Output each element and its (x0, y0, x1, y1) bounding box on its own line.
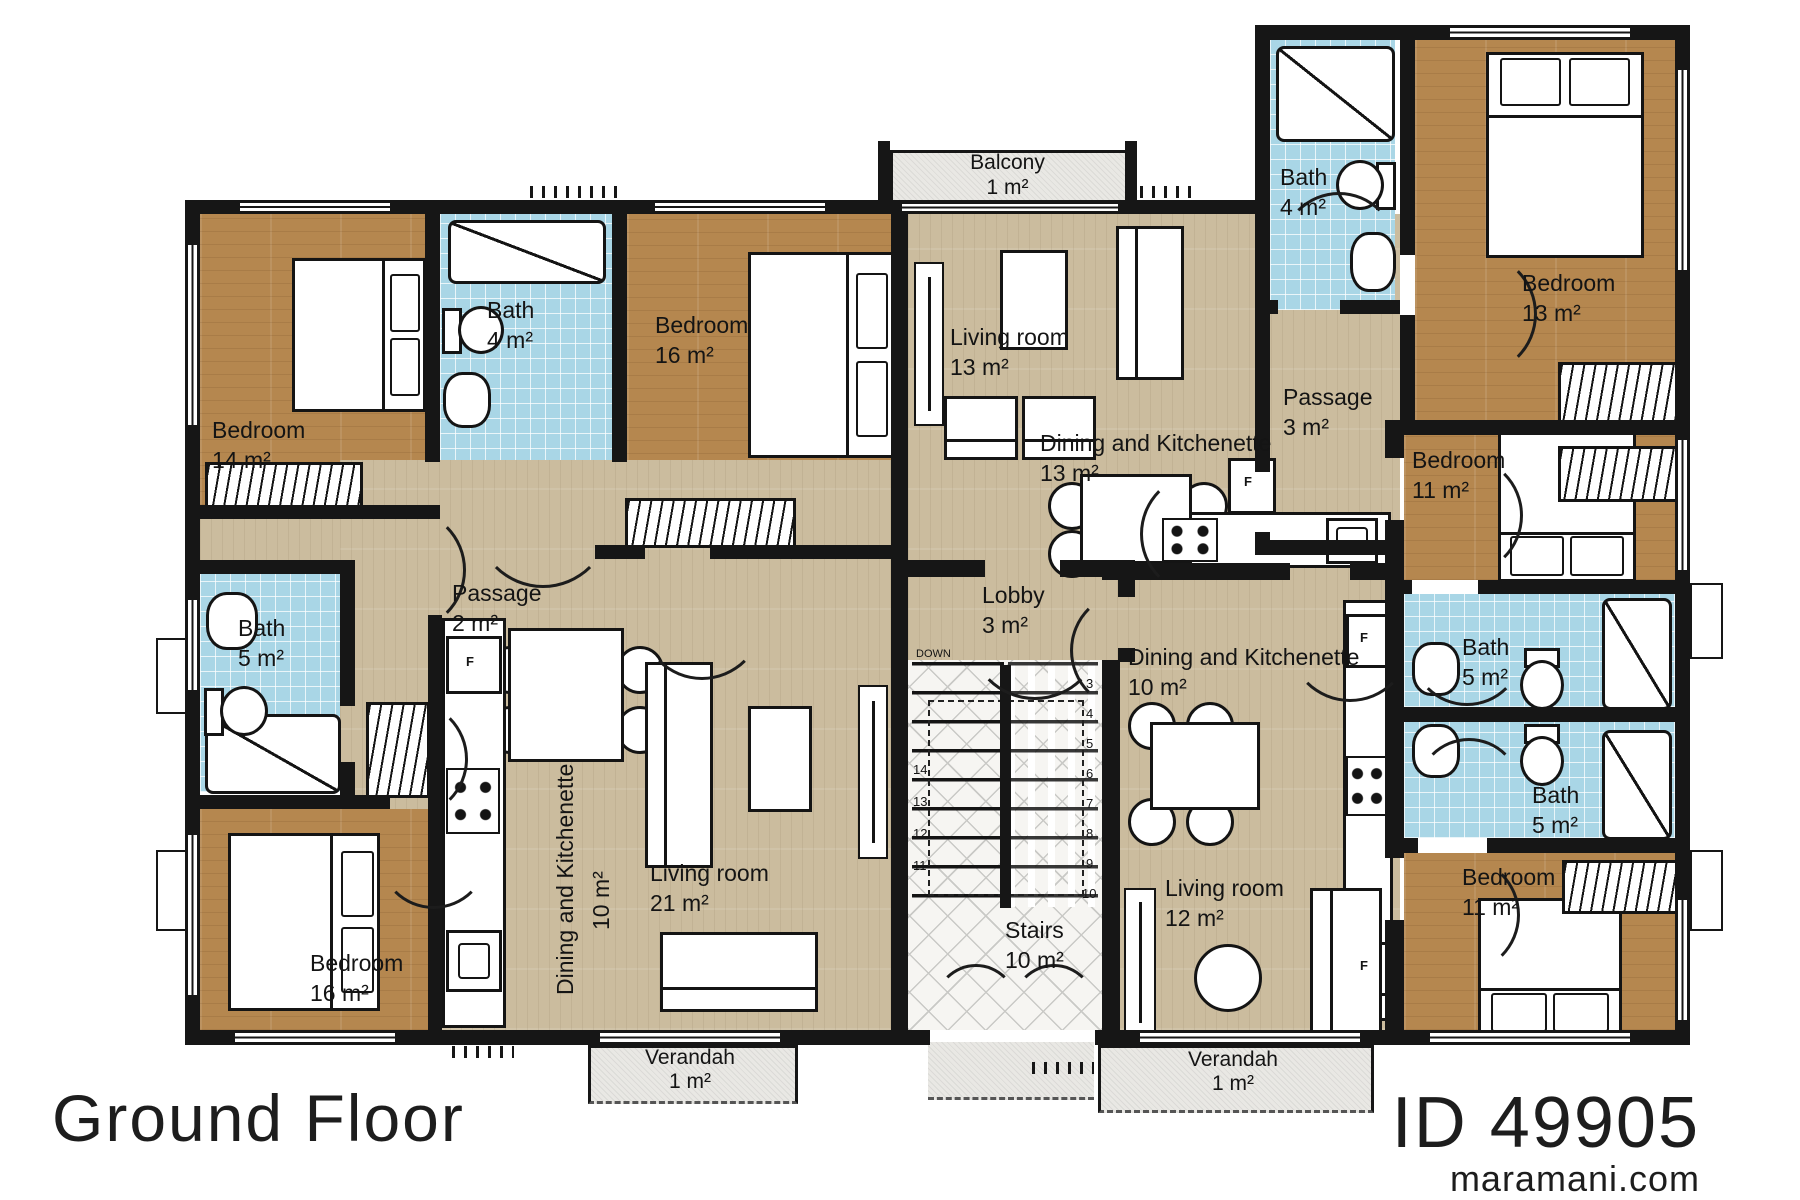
wall (425, 214, 440, 462)
room-label-bath-4-right: Bath4 m² (1280, 162, 1327, 223)
tv-cabinet (858, 685, 888, 859)
room-label-bath-4-left: Bath4 m² (487, 295, 534, 356)
wall-vent (530, 186, 622, 198)
window (902, 202, 1118, 213)
fridge-label: F (1360, 958, 1368, 973)
window (1676, 70, 1689, 270)
room-label-bath-5-low: Bath5 m² (1532, 780, 1579, 841)
window (600, 1031, 780, 1044)
window (235, 1031, 395, 1044)
wall (612, 214, 627, 462)
dining-table (1150, 722, 1260, 810)
window (1676, 900, 1689, 1020)
fridge (446, 636, 502, 694)
window (186, 245, 199, 425)
window (1676, 440, 1689, 570)
wardrobe (1558, 446, 1678, 502)
wardrobe (1558, 362, 1678, 424)
sofa (660, 932, 818, 1012)
wardrobe (625, 498, 796, 548)
shower-tray (1276, 46, 1395, 142)
room-label-bedroom-11-lower: Bedroom11 m² (1462, 862, 1555, 923)
wall (1400, 40, 1415, 255)
wall (185, 795, 390, 809)
shower-tray (448, 220, 606, 284)
room-label-dining-13: Dining and Kitchenette13 m² (1040, 428, 1271, 489)
shower-tray (1602, 730, 1672, 840)
room-label-bedroom-13: Bedroom13 m² (1522, 268, 1615, 329)
step-number: 7 (1086, 796, 1093, 811)
room-label-dining-10-right: Dining and Kitchenette10 m² (1128, 642, 1359, 703)
bed (292, 258, 426, 412)
door-arc (378, 798, 489, 909)
room-label-bath-5-mid: Bath5 m² (1462, 632, 1509, 693)
window (186, 600, 199, 690)
floor-plan-canvas: DOWN 14 13 12 11 3 4 5 6 7 8 9 10 (0, 0, 1800, 1200)
wall (1404, 580, 1412, 594)
window (1140, 1031, 1360, 1044)
door-arc (1416, 738, 1522, 844)
wall (1102, 660, 1120, 1030)
room-label-passage-3: Passage3 m² (1283, 382, 1373, 443)
step-number: 10 (1082, 886, 1096, 901)
room-label-bath-5-left: Bath5 m² (238, 613, 285, 674)
room-label-dining-10-left-name: Dining and Kitchenette (552, 764, 579, 995)
plan-id: ID 49905 (1380, 1082, 1700, 1164)
room-label-living-12: Living room12 m² (1165, 873, 1284, 934)
wall-vent (452, 1046, 514, 1058)
dining-table (508, 628, 624, 762)
window (186, 835, 199, 995)
room-label-living-21: Living room21 m² (650, 858, 769, 919)
door-arc (1012, 964, 1096, 1048)
window (240, 201, 390, 213)
wall (1404, 838, 1418, 853)
room-label-bedroom-16-bottom: Bedroom16 m² (310, 948, 403, 1009)
floor-title: Ground Floor (52, 1080, 465, 1156)
wall (1487, 838, 1675, 853)
wall (908, 1030, 930, 1045)
fridge-label: F (466, 654, 474, 669)
window-sill (1690, 850, 1723, 931)
window (1450, 26, 1630, 39)
door-arc (1413, 252, 1537, 376)
step-number: 9 (1086, 856, 1093, 871)
wardrobe (1562, 860, 1678, 914)
wall (1400, 420, 1675, 435)
room-label-bedroom-11-upper: Bedroom11 m² (1412, 445, 1505, 506)
step-number: 14 (913, 762, 927, 777)
window (1430, 1031, 1630, 1044)
armchair (944, 396, 1018, 460)
website: maramani.com (1380, 1158, 1700, 1200)
wall (185, 560, 355, 574)
ottoman (1194, 944, 1262, 1012)
toilet-bowl (1520, 660, 1564, 710)
wall (1270, 300, 1278, 314)
kitchen-sink (446, 930, 502, 992)
room-label-stairs: Stairs10 m² (1005, 915, 1064, 976)
step-number: 12 (913, 826, 927, 841)
room-label-verandah-left: Verandah1 m² (588, 1046, 792, 1094)
wall-vent (1032, 1062, 1094, 1074)
door-arc (1140, 472, 1264, 596)
room-label-bedroom-16-top: Bedroom16 m² (655, 310, 748, 371)
step-number: 8 (1086, 826, 1093, 841)
door-arc (342, 508, 466, 632)
sink (443, 372, 491, 428)
shower-tray (1602, 598, 1672, 710)
bed (1486, 52, 1644, 258)
room-label-lobby: Lobby3 m² (982, 580, 1045, 641)
step-number: 5 (1086, 736, 1093, 751)
sofa (645, 662, 713, 868)
wall (1400, 315, 1415, 420)
wall (1478, 580, 1675, 594)
stairs-divider (1000, 665, 1011, 908)
step-number: 4 (1086, 706, 1093, 721)
wall (1404, 707, 1675, 722)
wall (1270, 540, 1400, 555)
step-number: 6 (1086, 766, 1093, 781)
tv-cabinet (914, 262, 944, 426)
door-arc (640, 556, 764, 680)
room-label-verandah-right: Verandah1 m² (1098, 1048, 1368, 1096)
wall-vent (1128, 186, 1192, 198)
step-number: 13 (913, 794, 927, 809)
door-arc (934, 964, 1018, 1048)
wall (891, 200, 908, 1045)
bed (748, 252, 894, 458)
window (655, 201, 825, 213)
wall (878, 141, 890, 205)
stove (1346, 756, 1388, 816)
toilet-bowl (220, 686, 268, 736)
tv-cabinet (1124, 888, 1156, 1037)
wall (908, 560, 985, 577)
stairs-down-text: DOWN (916, 648, 951, 660)
room-label-passage-2: Passage2 m² (452, 578, 542, 639)
room-label-balcony: Balcony1 m² (890, 150, 1125, 200)
window-sill (1690, 583, 1723, 659)
sofa (1310, 888, 1382, 1042)
coffee-table (748, 706, 812, 812)
wall (710, 545, 908, 559)
wall (1385, 920, 1404, 1030)
toilet-bowl (1520, 736, 1564, 786)
door-arc (475, 452, 611, 588)
room-label-bedroom-14: Bedroom14 m² (212, 415, 305, 476)
room-label-dining-10-left-area: 10 m² (588, 871, 615, 930)
step-number: 11 (913, 858, 927, 873)
wall (1255, 25, 1270, 317)
sofa (1116, 226, 1184, 380)
room-label-living-13: Living room13 m² (950, 322, 1069, 383)
